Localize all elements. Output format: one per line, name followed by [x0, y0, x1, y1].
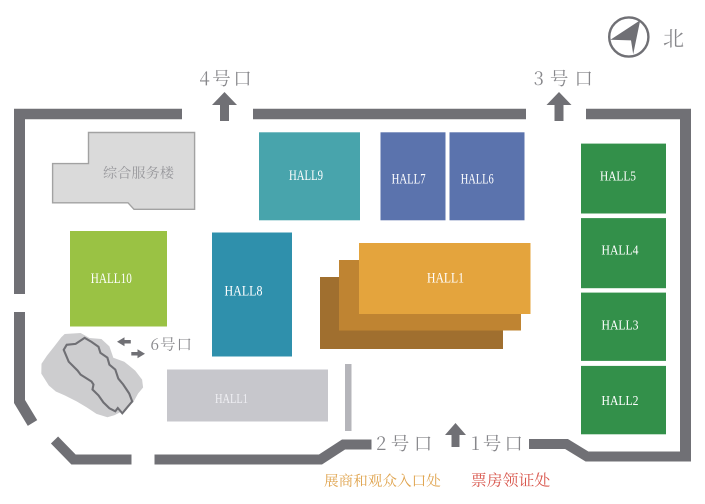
svg-text:HALL1: HALL1 [427, 270, 464, 286]
svg-text:HALL6: HALL6 [461, 171, 494, 187]
svg-text:HALL5: HALL5 [600, 170, 636, 185]
svg-text:HALL2: HALL2 [602, 394, 639, 409]
svg-text:HALL7: HALL7 [392, 171, 426, 187]
svg-text:HALL10: HALL10 [91, 271, 132, 287]
svg-text:HALL8: HALL8 [225, 283, 263, 299]
svg-text:HALL3: HALL3 [602, 318, 639, 333]
svg-text:HALL9: HALL9 [289, 168, 323, 184]
svg-text:HALL4: HALL4 [602, 243, 639, 258]
svg-text:HALL1: HALL1 [215, 391, 248, 406]
